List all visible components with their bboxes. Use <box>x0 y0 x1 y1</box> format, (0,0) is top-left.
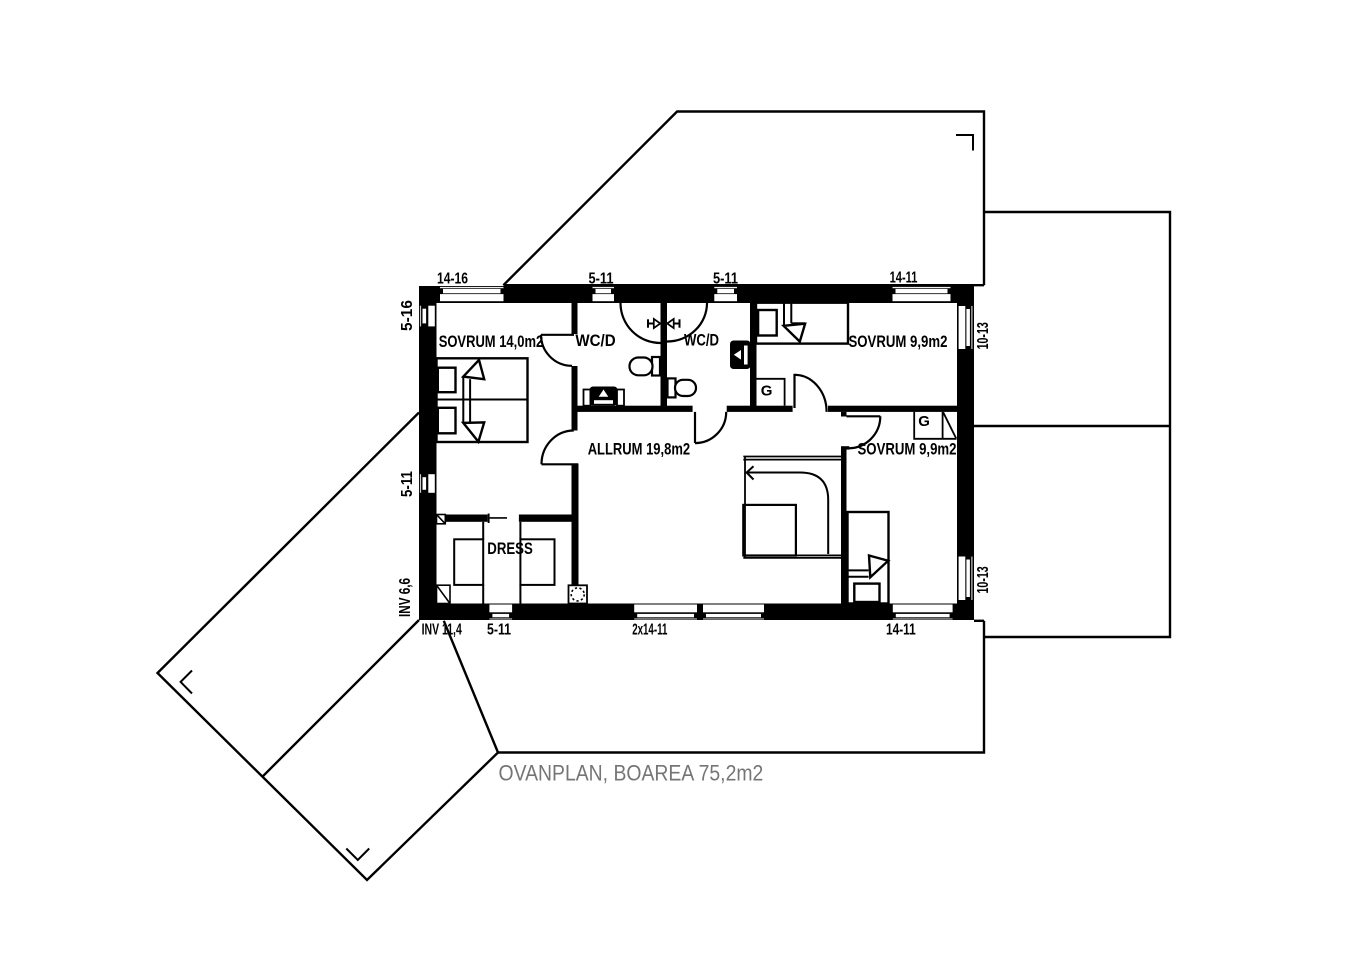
svg-text:INV 11,4: INV 11,4 <box>422 622 462 639</box>
svg-text:5-16: 5-16 <box>399 300 416 331</box>
svg-text:5-11: 5-11 <box>589 270 614 287</box>
svg-text:5-11: 5-11 <box>713 270 738 287</box>
svg-text:10-13: 10-13 <box>975 322 992 349</box>
svg-text:WC/D: WC/D <box>575 332 615 350</box>
svg-text:G: G <box>761 382 773 399</box>
svg-text:14-16: 14-16 <box>437 270 468 287</box>
svg-text:ALLRUM 19,8m2: ALLRUM 19,8m2 <box>588 441 690 459</box>
svg-text:14-11: 14-11 <box>890 269 918 286</box>
svg-text:5-11: 5-11 <box>399 471 416 497</box>
svg-text:SOVRUM 9,9m2: SOVRUM 9,9m2 <box>858 440 957 458</box>
svg-text:SOVRUM 14,0m2: SOVRUM 14,0m2 <box>439 333 544 351</box>
svg-text:SOVRUM 9,9m2: SOVRUM 9,9m2 <box>849 333 948 351</box>
svg-text:OVANPLAN, BOAREA 75,2m2: OVANPLAN, BOAREA 75,2m2 <box>499 761 764 786</box>
svg-text:G: G <box>918 413 930 430</box>
svg-text:INV 6,6: INV 6,6 <box>397 578 414 617</box>
svg-text:DRESS: DRESS <box>487 540 533 558</box>
svg-text:14-11: 14-11 <box>886 622 916 639</box>
svg-text:10-13: 10-13 <box>975 566 992 593</box>
svg-text:5-11: 5-11 <box>487 622 511 639</box>
svg-text:2x14-11: 2x14-11 <box>632 622 667 639</box>
svg-text:WC/D: WC/D <box>684 332 719 350</box>
